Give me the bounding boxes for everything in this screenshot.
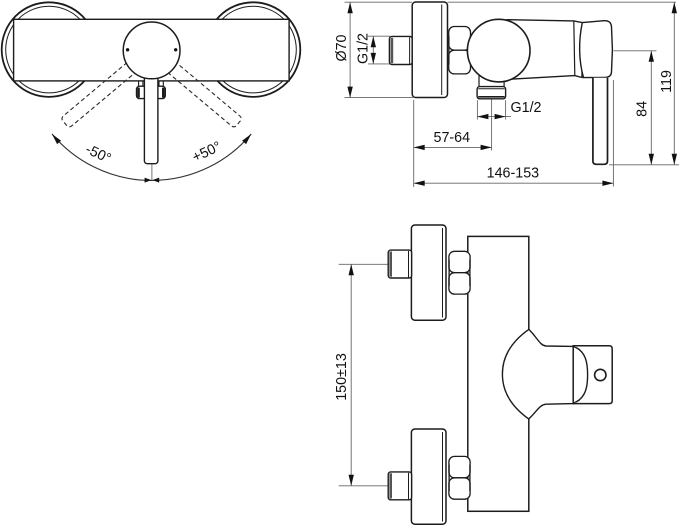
svg-text:146-153: 146-153: [487, 165, 540, 181]
svg-text:G1/2: G1/2: [511, 100, 542, 116]
svg-text:150±13: 150±13: [334, 353, 350, 401]
svg-text:Ø70: Ø70: [334, 34, 350, 61]
svg-text:57-64: 57-64: [434, 130, 471, 146]
svg-text:G1/2: G1/2: [356, 33, 372, 64]
svg-text:84: 84: [635, 101, 651, 117]
svg-text:119: 119: [659, 70, 675, 93]
